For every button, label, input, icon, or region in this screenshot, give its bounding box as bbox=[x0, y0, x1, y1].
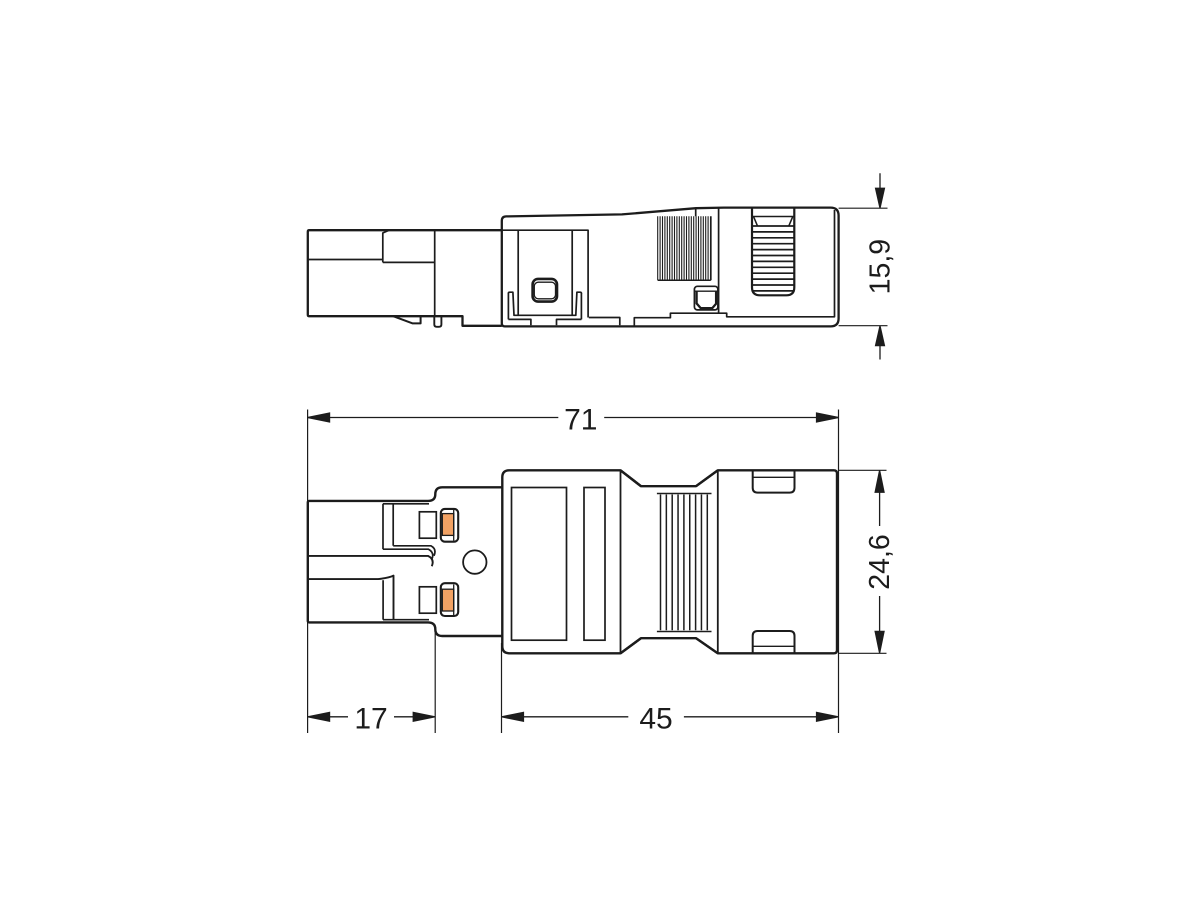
svg-text:15,9: 15,9 bbox=[865, 239, 897, 294]
svg-text:24,6: 24,6 bbox=[864, 534, 896, 589]
svg-text:17: 17 bbox=[354, 702, 387, 735]
svg-text:45: 45 bbox=[639, 702, 672, 735]
svg-text:71: 71 bbox=[564, 403, 597, 436]
